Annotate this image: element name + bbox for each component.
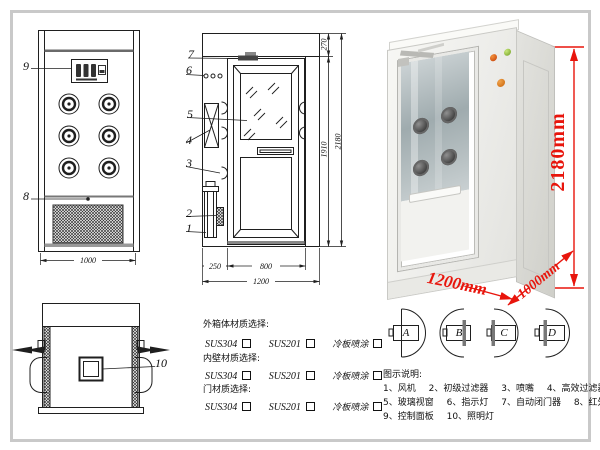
material-checkbox[interactable] xyxy=(373,371,382,380)
material-option: SUS304 xyxy=(205,371,237,382)
indicator-light-orange xyxy=(497,78,505,87)
door-glass-window xyxy=(401,52,469,202)
air-shower-spec-sheet: 2180mm 1200mm 1000mm 9 8 7 6 5 4 3 2 1 1… xyxy=(0,0,600,450)
door-config-a: A xyxy=(399,327,413,339)
door-config-d: D xyxy=(545,327,559,339)
material-option: SUS304 xyxy=(205,402,237,413)
callout-7: 7 xyxy=(188,48,194,60)
callout-2: 2 xyxy=(186,207,192,219)
legend-row: 5、玻璃视窗 6、指示灯 7、自动闭门器 8、红外线感应器 xyxy=(383,395,600,408)
callout-5: 5 xyxy=(187,108,193,120)
legend-item: 10、照明灯 xyxy=(447,412,494,422)
door-closer-arm xyxy=(418,43,444,53)
callout-3: 3 xyxy=(186,157,192,169)
dim-1910: 1910 xyxy=(320,130,329,170)
legend-row: 9、控制面板 10、照明灯 xyxy=(383,409,504,422)
material-section-title: 外箱体材质选择: xyxy=(203,317,269,330)
legend-item: 7、自动闭门器 xyxy=(501,398,561,408)
door-config-c: C xyxy=(497,327,511,339)
material-checkbox[interactable] xyxy=(373,402,382,411)
legend-item: 6、指示灯 xyxy=(447,398,489,408)
material-section-title: 门材质选择: xyxy=(203,382,251,395)
dim-250: 250 xyxy=(204,262,226,271)
callout-10: 10 xyxy=(155,357,167,369)
callout-6: 6 xyxy=(186,64,192,76)
interior-nozzle xyxy=(441,148,457,167)
dim-width-1000: 1000 xyxy=(74,256,102,265)
legend-item: 3、喷嘴 xyxy=(501,384,534,394)
photo-height-dim: 2180mm xyxy=(547,94,569,210)
door-config-b: B xyxy=(452,327,466,339)
dim-800: 800 xyxy=(252,262,280,271)
material-checkbox[interactable] xyxy=(242,339,251,348)
cabinet-front-face xyxy=(387,27,517,300)
legend-item: 1、风机 xyxy=(383,384,416,394)
interior-nozzle xyxy=(413,159,429,178)
glass-reflection xyxy=(435,56,442,195)
indicator-light-red xyxy=(490,54,497,62)
material-checkbox[interactable] xyxy=(306,339,315,348)
cabinet-glass-door xyxy=(398,47,478,271)
indicator-light-green xyxy=(504,48,511,56)
callout-8: 8 xyxy=(23,190,29,202)
callout-4: 4 xyxy=(186,134,192,146)
material-option: 冷板喷涂 xyxy=(332,339,368,349)
material-checkbox[interactable] xyxy=(242,402,251,411)
material-options-row: SUS304 SUS201 冷板喷涂 xyxy=(205,397,395,415)
callout-9: 9 xyxy=(23,60,29,72)
interior-nozzle xyxy=(413,117,429,136)
material-option: SUS201 xyxy=(269,402,301,413)
material-option: SUS201 xyxy=(269,339,301,350)
material-options-row: SUS304 SUS201 冷板喷涂 xyxy=(205,334,395,352)
legend-item: 5、玻璃视窗 xyxy=(383,398,434,408)
material-section-title: 内壁材质选择: xyxy=(203,351,260,364)
callout-1: 1 xyxy=(186,222,192,234)
material-checkbox[interactable] xyxy=(242,371,251,380)
material-option: SUS201 xyxy=(269,371,301,382)
legend-item: 4、高效过滤器 xyxy=(547,384,600,394)
interior-nozzle xyxy=(441,106,457,125)
material-checkbox[interactable] xyxy=(306,402,315,411)
material-option: 冷板喷涂 xyxy=(332,371,368,381)
legend-row: 1、风机 2、初级过滤器 3、喷嘴 4、高效过滤器 xyxy=(383,381,600,394)
material-checkbox[interactable] xyxy=(373,339,382,348)
legend-item: 8、红外线感应器 xyxy=(574,398,600,408)
legend-item: 9、控制面板 xyxy=(383,412,434,422)
side-panel-seam xyxy=(523,60,549,279)
legend-title: 图示说明: xyxy=(383,367,422,380)
material-option: 冷板喷涂 xyxy=(332,402,368,412)
dim-1200: 1200 xyxy=(247,277,275,286)
dim-270: 270 xyxy=(320,31,329,59)
material-checkbox[interactable] xyxy=(306,371,315,380)
dim-2180: 2180 xyxy=(334,122,343,162)
material-option: SUS304 xyxy=(205,339,237,350)
legend-item: 2、初级过滤器 xyxy=(429,384,489,394)
